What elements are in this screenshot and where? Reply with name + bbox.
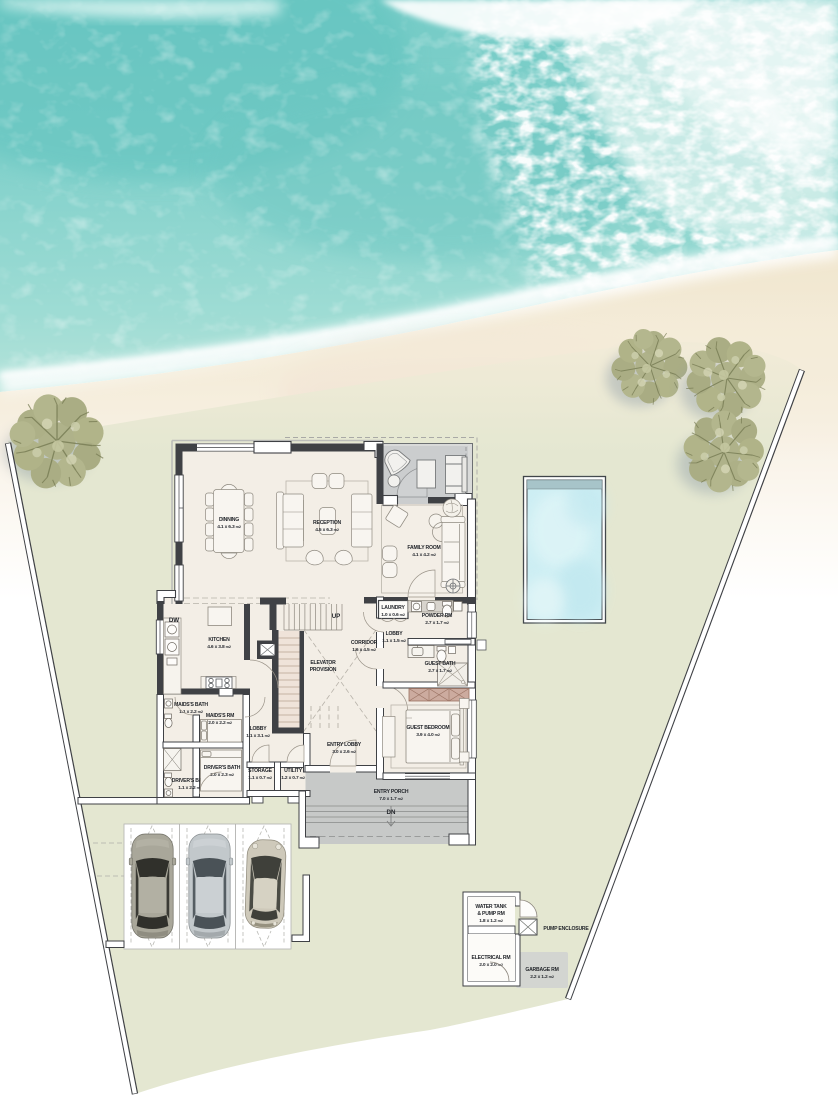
svg-text:FAMILY ROOM: FAMILY ROOM	[407, 545, 440, 551]
svg-text:LOBBY: LOBBY	[386, 631, 404, 637]
svg-text:DRIVER'S BATH: DRIVER'S BATH	[204, 765, 241, 771]
svg-text:ELECTRICAL RM: ELECTRICAL RM	[472, 955, 511, 961]
svg-text:ELEVATOR: ELEVATOR	[310, 660, 336, 666]
svg-text:POWDER RM: POWDER RM	[422, 613, 452, 619]
svg-text:CORRIDOR: CORRIDOR	[351, 640, 378, 646]
svg-text:RECEPTION: RECEPTION	[313, 520, 341, 526]
svg-text:ENTRY LOBBY: ENTRY LOBBY	[327, 742, 362, 748]
svg-text:KITCHEN: KITCHEN	[208, 637, 230, 643]
svg-text:MAIDS'S BATH: MAIDS'S BATH	[174, 702, 208, 708]
svg-text:LOBBY: LOBBY	[250, 726, 268, 732]
svg-text:PROVISION: PROVISION	[310, 667, 337, 673]
svg-text:DINNING: DINNING	[219, 517, 239, 523]
svg-text:UP: UP	[332, 613, 341, 620]
svg-text:GARBAGE RM: GARBAGE RM	[525, 967, 558, 973]
svg-text:GUEST BEDROOM: GUEST BEDROOM	[407, 725, 450, 731]
svg-text:WATER TANK: WATER TANK	[475, 904, 507, 910]
svg-text:& PUMP RM: & PUMP RM	[477, 911, 504, 917]
svg-text:UTILITY: UTILITY	[284, 768, 303, 774]
svg-text:DW: DW	[169, 617, 179, 624]
svg-text:GUEST BATH: GUEST BATH	[425, 661, 456, 667]
svg-text:ENTRY PORCH: ENTRY PORCH	[374, 789, 409, 795]
svg-text:MAIDS'S RM: MAIDS'S RM	[206, 713, 234, 719]
svg-text:STORAGE: STORAGE	[248, 768, 272, 774]
svg-text:LAUNDRY: LAUNDRY	[381, 605, 405, 611]
svg-text:PUMP ENCLOSURE: PUMP ENCLOSURE	[543, 926, 589, 932]
